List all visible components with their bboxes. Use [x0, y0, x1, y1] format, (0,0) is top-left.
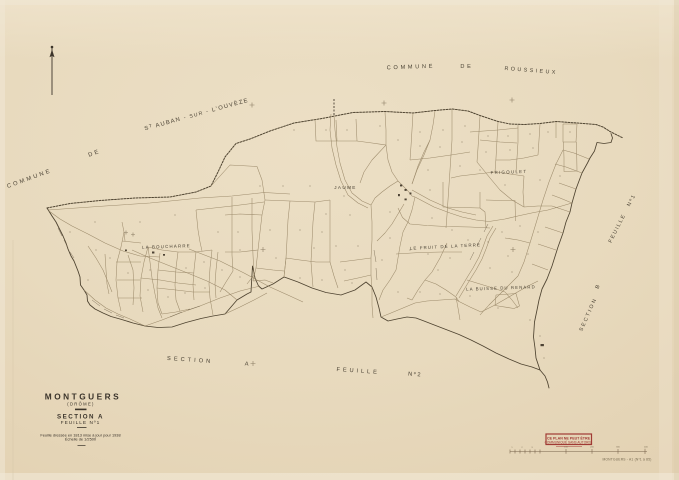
svg-text:(DRÔME): (DRÔME) — [67, 402, 94, 407]
svg-text:Échelle de 1/2500: Échelle de 1/2500 — [65, 436, 97, 441]
svg-text:SECTION A: SECTION A — [57, 414, 104, 421]
svg-text:MONTGUERS - A1 (Nº1 à 85): MONTGUERS - A1 (Nº1 à 85) — [602, 457, 651, 461]
svg-text:JAUME: JAUME — [334, 185, 357, 190]
svg-text:A: A — [244, 361, 248, 367]
svg-text:COMMUNIQUÉ SANS AUTORIS.: COMMUNIQUÉ SANS AUTORIS. — [545, 439, 593, 444]
svg-text:DE: DE — [460, 64, 473, 70]
svg-text:FEUILLE Nº1: FEUILLE Nº1 — [61, 420, 101, 426]
svg-text:MONTGUERS: MONTGUERS — [45, 392, 121, 402]
svg-text:Nº2: Nº2 — [408, 371, 423, 379]
